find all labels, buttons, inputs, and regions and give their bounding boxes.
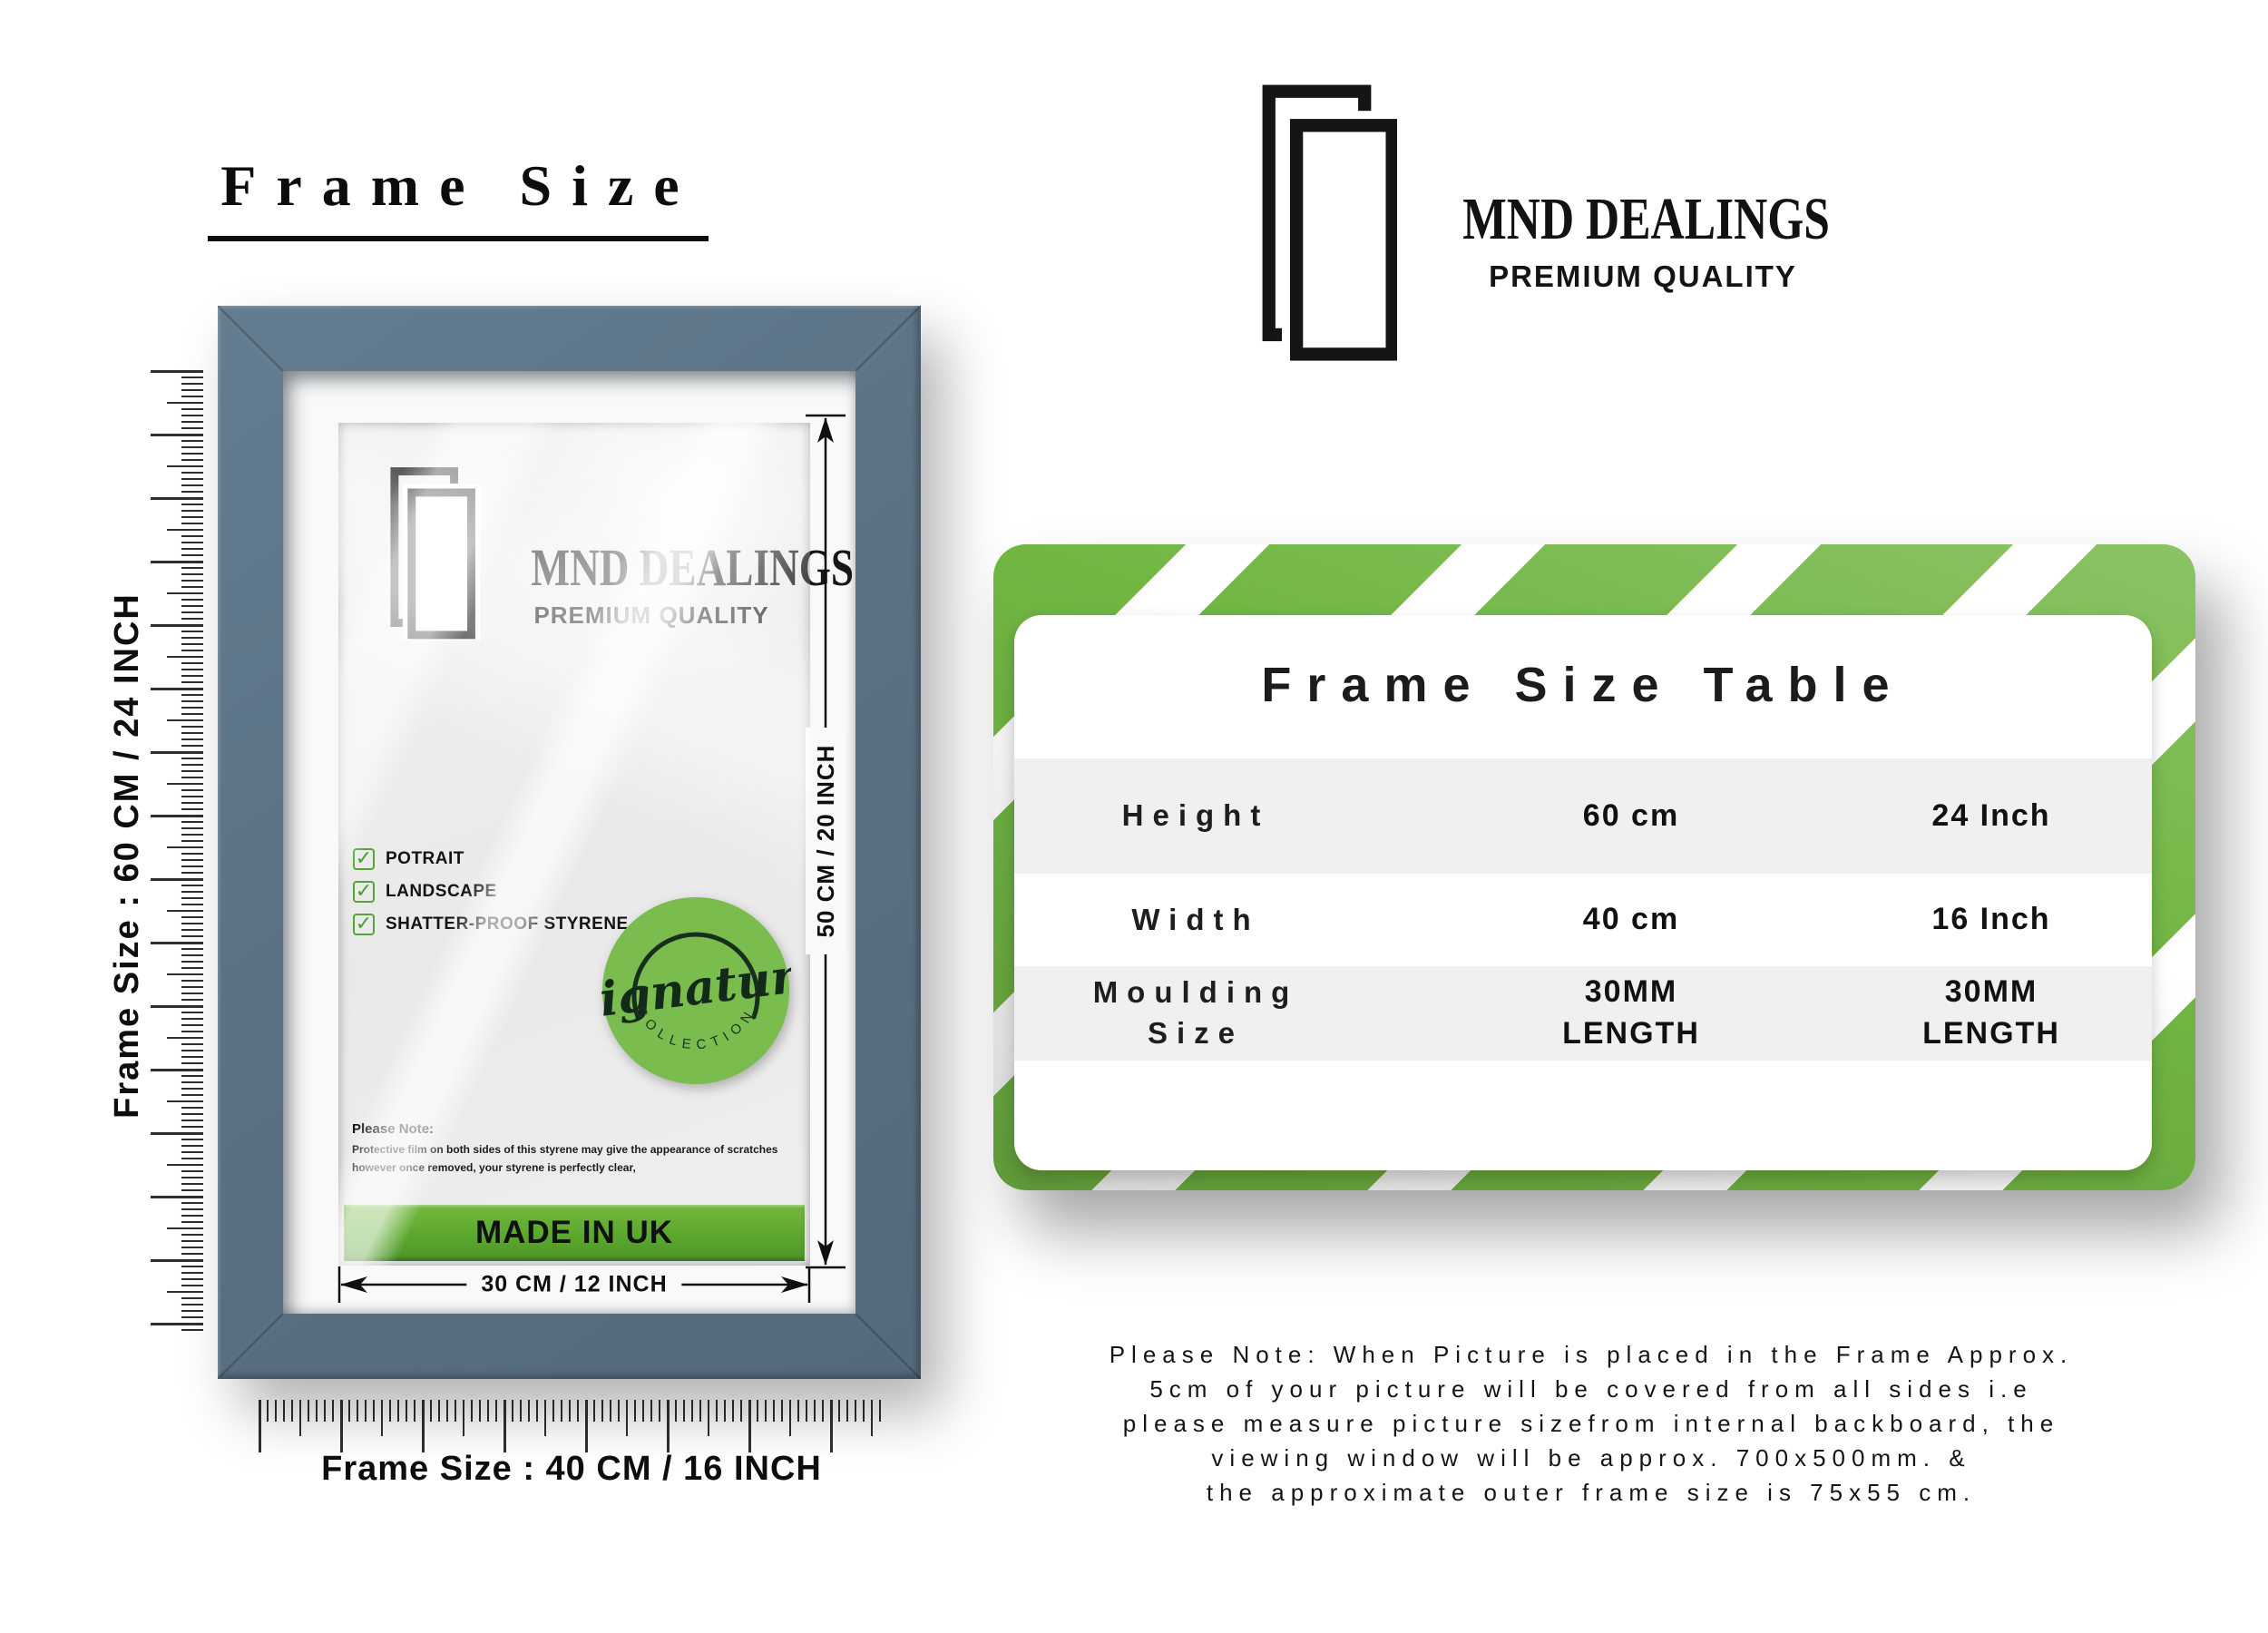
made-in-uk-banner: MADE IN UK xyxy=(344,1205,805,1261)
styrene-note: Please Note: Protective film on both sid… xyxy=(352,1121,795,1178)
frame-size-infographic: Frame Size Frame Size : 60 CM / 24 INCH … xyxy=(0,0,2268,1633)
brand-name: MND DEALINGS xyxy=(1462,185,1760,254)
table-title: Frame Size Table xyxy=(1014,615,2152,735)
footnote-line: Please Note: When Picture is placed in t… xyxy=(992,1337,2190,1372)
row-label: Height xyxy=(1122,796,1270,836)
brand-tagline: PREMIUM QUALITY xyxy=(497,601,806,630)
brand-tagline: PREMIUM QUALITY xyxy=(1421,259,1802,294)
row-imperial-value: 16 Inch xyxy=(1931,899,2050,941)
list-item: ✓ SHATTER-PROOF STYRENE xyxy=(353,911,629,938)
table-row: Width 40 cm 16 Inch xyxy=(1014,874,2152,966)
table-row: Height 60 cm 24 Inch xyxy=(1014,758,2152,874)
frame-logo-icon xyxy=(1259,47,1397,399)
row-metric-value: 40 cm xyxy=(1583,899,1679,941)
brand-name: MND DEALINGS xyxy=(531,537,771,598)
inner-height-label: 50 CM / 20 INCH xyxy=(806,728,846,954)
row-metric-value: 60 cm xyxy=(1583,796,1679,837)
row-label: Moulding Size xyxy=(1078,973,1314,1053)
size-table-panel: Frame Size Table Height 60 cm 24 Inch Wi… xyxy=(1014,615,2152,1170)
list-item: ✓ POTRAIT xyxy=(353,846,629,873)
checkbox-icon: ✓ xyxy=(353,848,375,870)
styrene-glass-panel: MND DEALINGS PREMIUM QUALITY ✓ POTRAIT ✓… xyxy=(338,423,810,1266)
footnote-line: 5cm of your picture will be covered from… xyxy=(992,1372,2190,1406)
outer-width-label: Frame Size : 40 CM / 16 INCH xyxy=(259,1450,885,1489)
horizontal-ruler xyxy=(259,1400,885,1452)
signature-collection-badge: Signature COLLECTION xyxy=(601,895,791,1086)
vertical-ruler xyxy=(151,370,203,1334)
brand-header: MND DEALINGS PREMIUM QUALITY xyxy=(1259,47,1802,399)
outer-height-label: Frame Size : 60 CM / 24 INCH xyxy=(107,506,147,1205)
frame-size-table-card: Frame Size Table Height 60 cm 24 Inch Wi… xyxy=(993,544,2195,1190)
page-title: Frame Size xyxy=(195,152,721,241)
checkbox-icon: ✓ xyxy=(353,881,375,903)
row-metric-value: 30MM LENGTH xyxy=(1554,972,1708,1055)
inner-width-label: 30 CM / 12 INCH xyxy=(466,1270,681,1300)
footnote-line: the approximate outer frame size is 75x5… xyxy=(992,1475,2190,1510)
frame-insert-brand: MND DEALINGS PREMIUM QUALITY xyxy=(375,466,806,640)
footnote: Please Note: When Picture is placed in t… xyxy=(992,1337,2190,1510)
feature-list: ✓ POTRAIT ✓ LANDSCAPE ✓ SHATTER-PROOF ST… xyxy=(353,846,629,944)
row-imperial-value: 24 Inch xyxy=(1931,796,2050,837)
row-imperial-value: 30MM LENGTH xyxy=(1914,972,2068,1055)
row-label: Width xyxy=(1131,900,1259,941)
checkbox-icon: ✓ xyxy=(353,914,375,935)
table-row: Moulding Size 30MM LENGTH 30MM LENGTH xyxy=(1014,966,2152,1061)
footnote-line: viewing window will be approx. 700x500mm… xyxy=(992,1441,2190,1475)
frame-mat: MND DEALINGS PREMIUM QUALITY ✓ POTRAIT ✓… xyxy=(283,371,855,1314)
picture-frame-mockup: MND DEALINGS PREMIUM QUALITY ✓ POTRAIT ✓… xyxy=(218,306,921,1379)
width-dimension: 30 CM / 12 INCH xyxy=(337,1263,812,1306)
footnote-line: please measure picture sizefrom internal… xyxy=(992,1406,2190,1441)
list-item: ✓ LANDSCAPE xyxy=(353,878,629,905)
frame-logo-icon xyxy=(375,466,488,640)
height-dimension: 50 CM / 20 INCH xyxy=(798,413,853,1270)
